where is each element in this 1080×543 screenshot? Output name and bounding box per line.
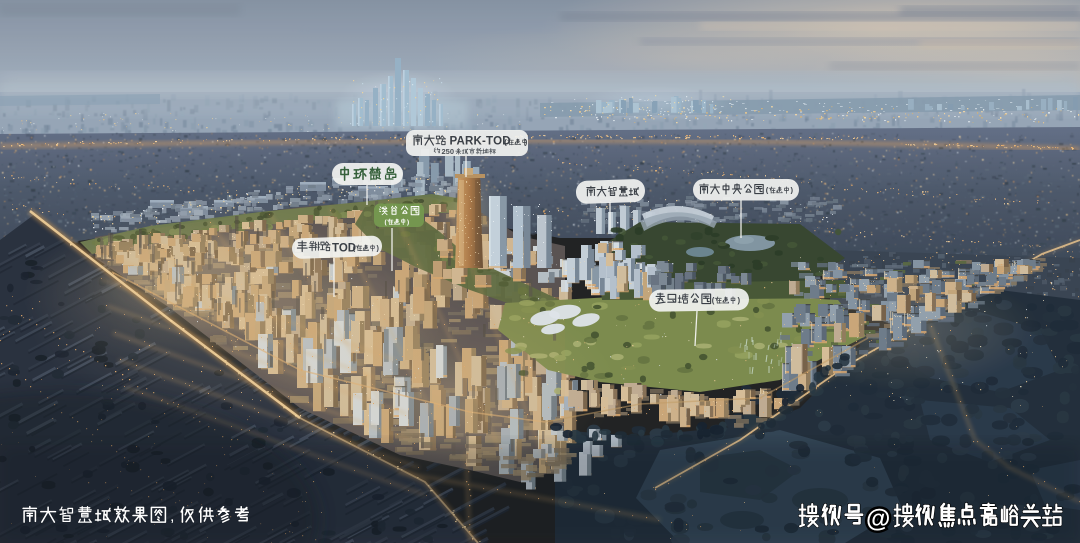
svg-text:): ) [738, 296, 741, 305]
svg-text:PARK-TOD: PARK-TOD [450, 136, 511, 148]
svg-text:,: , [170, 508, 174, 525]
svg-text:(: ( [712, 296, 715, 305]
svg-text:250: 250 [442, 147, 455, 156]
svg-text:@: @ [866, 505, 890, 533]
svg-text:): ) [407, 219, 409, 226]
